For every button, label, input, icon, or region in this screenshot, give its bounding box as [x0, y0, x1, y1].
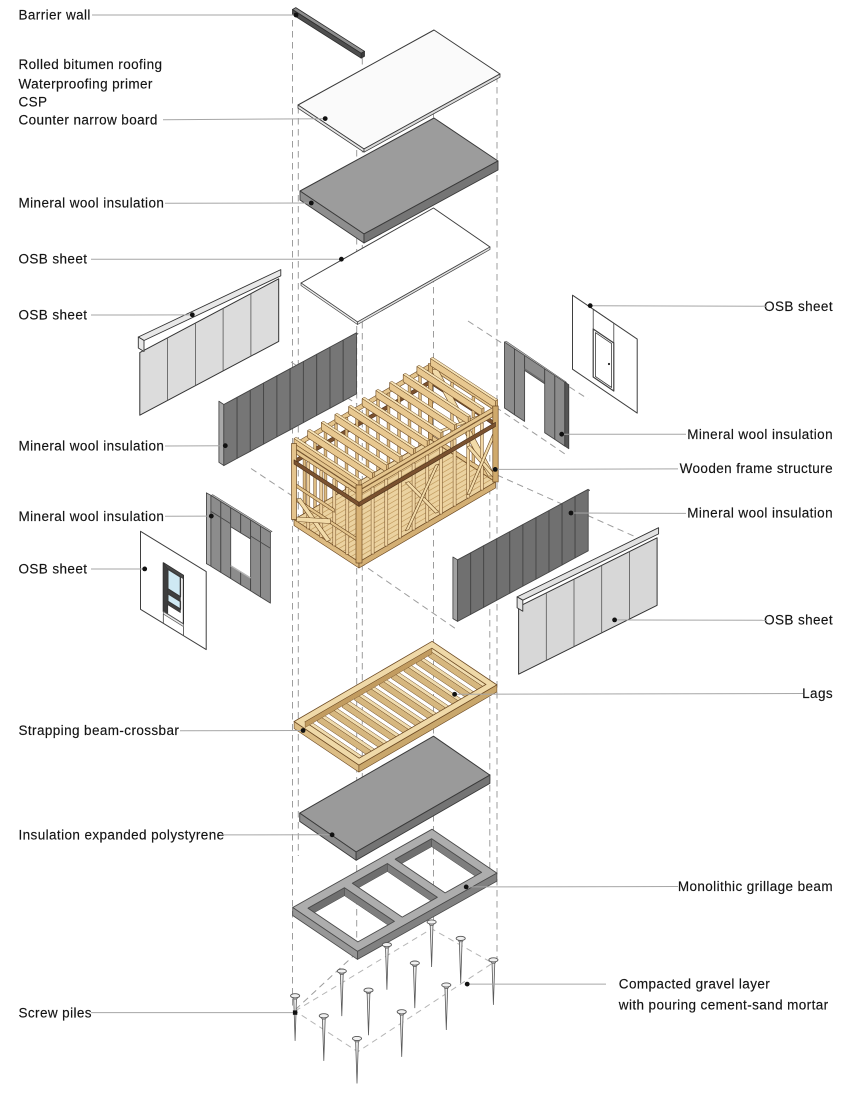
svg-text:Mineral wool insulation: Mineral wool insulation: [687, 506, 833, 521]
svg-text:OSB sheet: OSB sheet: [19, 308, 88, 323]
svg-text:Mineral wool insulation: Mineral wool insulation: [19, 438, 165, 453]
svg-text:CSP: CSP: [19, 94, 48, 109]
svg-text:Mineral wool insulation: Mineral wool insulation: [687, 427, 833, 442]
svg-text:Screw piles: Screw piles: [19, 1005, 92, 1020]
svg-text:OSB sheet: OSB sheet: [764, 613, 833, 628]
svg-text:OSB sheet: OSB sheet: [764, 299, 833, 314]
svg-text:Mineral wool insulation: Mineral wool insulation: [19, 196, 165, 211]
svg-text:Monolithic grillage beam: Monolithic grillage beam: [678, 879, 833, 894]
svg-text:Insulation expanded polystyren: Insulation expanded polystyrene: [19, 828, 225, 843]
svg-text:Lags: Lags: [802, 686, 833, 701]
svg-text:Barrier wall: Barrier wall: [19, 8, 91, 23]
svg-text:Wooden frame structure: Wooden frame structure: [680, 461, 833, 476]
svg-text:OSB sheet: OSB sheet: [19, 252, 88, 267]
svg-text:OSB sheet: OSB sheet: [19, 562, 88, 577]
svg-text:Rolled bitumen roofing: Rolled bitumen roofing: [19, 57, 163, 72]
svg-text:Compacted gravel layer: Compacted gravel layer: [619, 977, 770, 992]
svg-text:Strapping beam-crossbar: Strapping beam-crossbar: [19, 723, 180, 738]
svg-text:with pouring cement-sand morta: with pouring cement-sand mortar: [618, 997, 829, 1012]
svg-text:Waterproofing primer: Waterproofing primer: [19, 76, 153, 91]
svg-text:Mineral wool insulation: Mineral wool insulation: [19, 509, 165, 524]
svg-text:Counter narrow board: Counter narrow board: [19, 112, 158, 127]
